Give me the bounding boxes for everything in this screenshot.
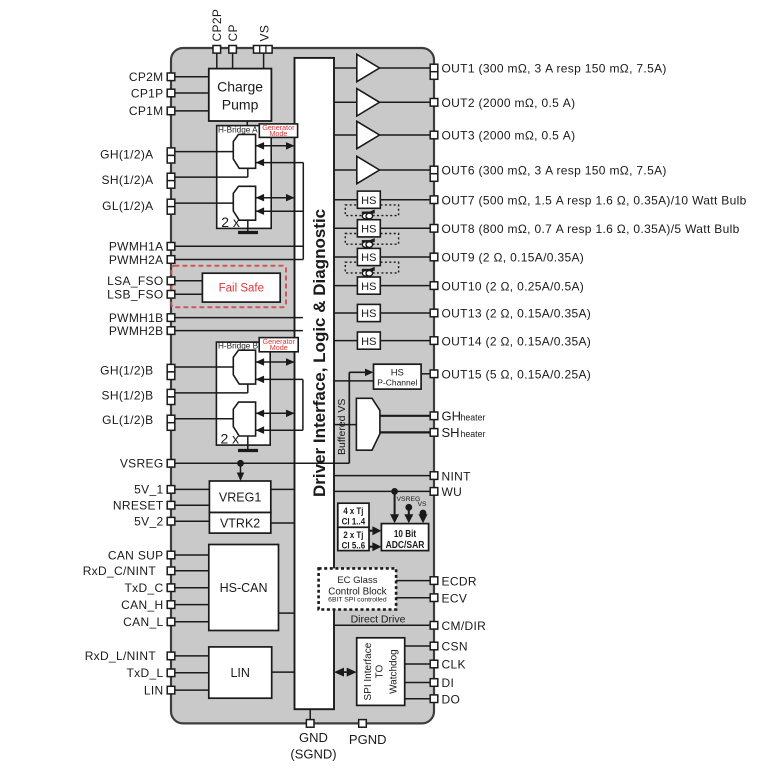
svg-text:HS: HS (361, 336, 376, 348)
svg-text:CP1M: CP1M (129, 104, 164, 118)
svg-text:Mode: Mode (270, 343, 288, 352)
svg-text:LSB_FSO: LSB_FSO (107, 288, 163, 302)
svg-text:PWMH1A: PWMH1A (109, 240, 164, 254)
svg-text:H-Bridge B: H-Bridge B (218, 342, 259, 351)
svg-text:GH(1/2)A: GH(1/2)A (100, 148, 153, 162)
svg-text:HS-CAN: HS-CAN (220, 581, 268, 595)
svg-text:HS: HS (361, 224, 376, 236)
svg-text:OUT14 (2 Ω, 0.15A/0.35A): OUT14 (2 Ω, 0.15A/0.35A) (442, 334, 592, 348)
svg-text:5V_1: 5V_1 (134, 483, 163, 497)
svg-text:OUT7 (500 mΩ, 1.5 A resp 1.6 Ω: OUT7 (500 mΩ, 1.5 A resp 1.6 Ω, 0.35A)/1… (442, 193, 747, 207)
svg-text:SH(1/2)A: SH(1/2)A (102, 173, 154, 187)
svg-text:Fail Safe: Fail Safe (219, 283, 264, 295)
svg-text:TxD_C: TxD_C (125, 581, 164, 595)
svg-text:CP2M: CP2M (129, 70, 164, 84)
svg-text:6BIT SPI controlled: 6BIT SPI controlled (328, 597, 387, 604)
svg-text:2 x Tj: 2 x Tj (343, 530, 363, 541)
svg-text:OUT6 (300 mΩ, 3 A resp 150 mΩ,: OUT6 (300 mΩ, 3 A resp 150 mΩ, 7.5A) (442, 164, 667, 178)
svg-text:CP2P: CP2P (210, 9, 224, 42)
svg-text:RxD_C/NINT: RxD_C/NINT (83, 564, 157, 578)
svg-text:2 x: 2 x (221, 214, 240, 230)
svg-text:LSA_FSO: LSA_FSO (107, 274, 163, 288)
svg-text:4 x Tj: 4 x Tj (343, 506, 363, 517)
svg-text:VTRK2: VTRK2 (220, 516, 260, 530)
svg-text:CP1P: CP1P (131, 86, 164, 100)
svg-text:CAN_H: CAN_H (121, 598, 163, 612)
svg-text:PWMH2B: PWMH2B (109, 324, 164, 338)
svg-text:NINT: NINT (442, 469, 472, 483)
svg-text:OUT15 (5 Ω, 0.15A/0.25A): OUT15 (5 Ω, 0.15A/0.25A) (442, 368, 592, 382)
svg-text:Direct Drive: Direct Drive (351, 614, 406, 626)
svg-text:RxD_L/NINT: RxD_L/NINT (85, 649, 157, 663)
svg-text:HS: HS (361, 195, 376, 207)
svg-text:TxD_L: TxD_L (127, 666, 164, 680)
svg-text:VS: VS (258, 25, 272, 42)
svg-text:OUT13 (2 Ω, 0.15A/0.35A): OUT13 (2 Ω, 0.15A/0.35A) (442, 307, 592, 321)
svg-text:2 x: 2 x (221, 431, 240, 447)
svg-text:VSREG: VSREG (120, 457, 164, 471)
svg-text:CI 1..4: CI 1..4 (342, 517, 366, 528)
svg-text:HS: HS (361, 281, 376, 293)
svg-text:TO: TO (375, 665, 386, 679)
svg-text:GND: GND (299, 730, 328, 745)
svg-text:heater: heater (461, 413, 486, 423)
svg-text:OUT9 (2 Ω, 0.15A/0.35A): OUT9 (2 Ω, 0.15A/0.35A) (442, 251, 585, 265)
svg-text:SPI Interface: SPI Interface (363, 642, 374, 700)
svg-text:SH(1/2)B: SH(1/2)B (102, 388, 154, 402)
svg-text:CSN: CSN (442, 640, 468, 654)
svg-text:5V_2: 5V_2 (134, 515, 163, 529)
svg-text:NRESET: NRESET (113, 499, 164, 513)
svg-text:Mode: Mode (269, 129, 287, 138)
svg-text:DO: DO (442, 692, 461, 706)
svg-text:CM/DIR: CM/DIR (442, 619, 487, 633)
svg-text:PGND: PGND (349, 732, 387, 747)
svg-text:(SGND): (SGND) (290, 747, 336, 762)
svg-text:GL(1/2)B: GL(1/2)B (102, 413, 153, 427)
svg-text:CLK: CLK (442, 658, 466, 672)
svg-text:Driver Interface, Logic & Diag: Driver Interface, Logic & Diagnostic (310, 209, 329, 497)
svg-text:CAN SUP: CAN SUP (108, 548, 164, 562)
svg-text:VREG1: VREG1 (219, 490, 261, 504)
svg-text:CI 5..6: CI 5..6 (342, 540, 366, 551)
svg-text:OUT3 (2000 mΩ, 0.5 A): OUT3 (2000 mΩ, 0.5 A) (442, 129, 576, 143)
svg-text:heater: heater (461, 429, 486, 439)
svg-text:P-Channel: P-Channel (377, 378, 417, 388)
svg-text:LIN: LIN (144, 683, 164, 697)
svg-text:DI: DI (442, 676, 455, 690)
svg-text:GH(1/2)B: GH(1/2)B (100, 364, 153, 378)
svg-text:OUT10 (2 Ω, 0.25A/0.5A): OUT10 (2 Ω, 0.25A/0.5A) (442, 279, 585, 293)
svg-text:PWMH1B: PWMH1B (109, 311, 164, 325)
svg-text:EC Glass: EC Glass (337, 575, 377, 586)
svg-text:GL(1/2)A: GL(1/2)A (102, 199, 153, 213)
svg-text:PWMH2A: PWMH2A (109, 253, 164, 267)
svg-text:OUT1 (300 mΩ, 3 A resp 150 mΩ,: OUT1 (300 mΩ, 3 A resp 150 mΩ, 7.5A) (442, 62, 667, 76)
svg-text:Buffered VS: Buffered VS (336, 399, 348, 455)
svg-text:OUT2 (2000 mΩ, 0.5 A): OUT2 (2000 mΩ, 0.5 A) (442, 96, 576, 110)
svg-text:SH: SH (442, 425, 460, 440)
svg-text:CAN_L: CAN_L (123, 615, 163, 629)
svg-text:ADC/SAR: ADC/SAR (386, 540, 425, 551)
svg-text:H-Bridge A: H-Bridge A (218, 125, 258, 134)
svg-text:LIN: LIN (230, 666, 249, 680)
svg-text:Watchdog: Watchdog (389, 649, 400, 694)
svg-text:Charge: Charge (217, 79, 263, 95)
svg-text:10 Bit: 10 Bit (394, 529, 417, 540)
svg-text:HS: HS (361, 252, 376, 264)
svg-text:GH: GH (442, 409, 462, 424)
svg-text:WU: WU (442, 485, 463, 499)
svg-text:VS: VS (417, 501, 427, 508)
svg-text:ECDR: ECDR (442, 574, 477, 588)
svg-text:CP: CP (226, 24, 240, 41)
svg-text:ECV: ECV (442, 591, 468, 605)
svg-text:OUT8 (800 mΩ, 0.7 A resp 1.6 Ω: OUT8 (800 mΩ, 0.7 A resp 1.6 Ω, 0.35A)/5… (442, 222, 740, 236)
svg-text:Pump: Pump (222, 97, 259, 113)
svg-text:HS: HS (361, 308, 376, 320)
